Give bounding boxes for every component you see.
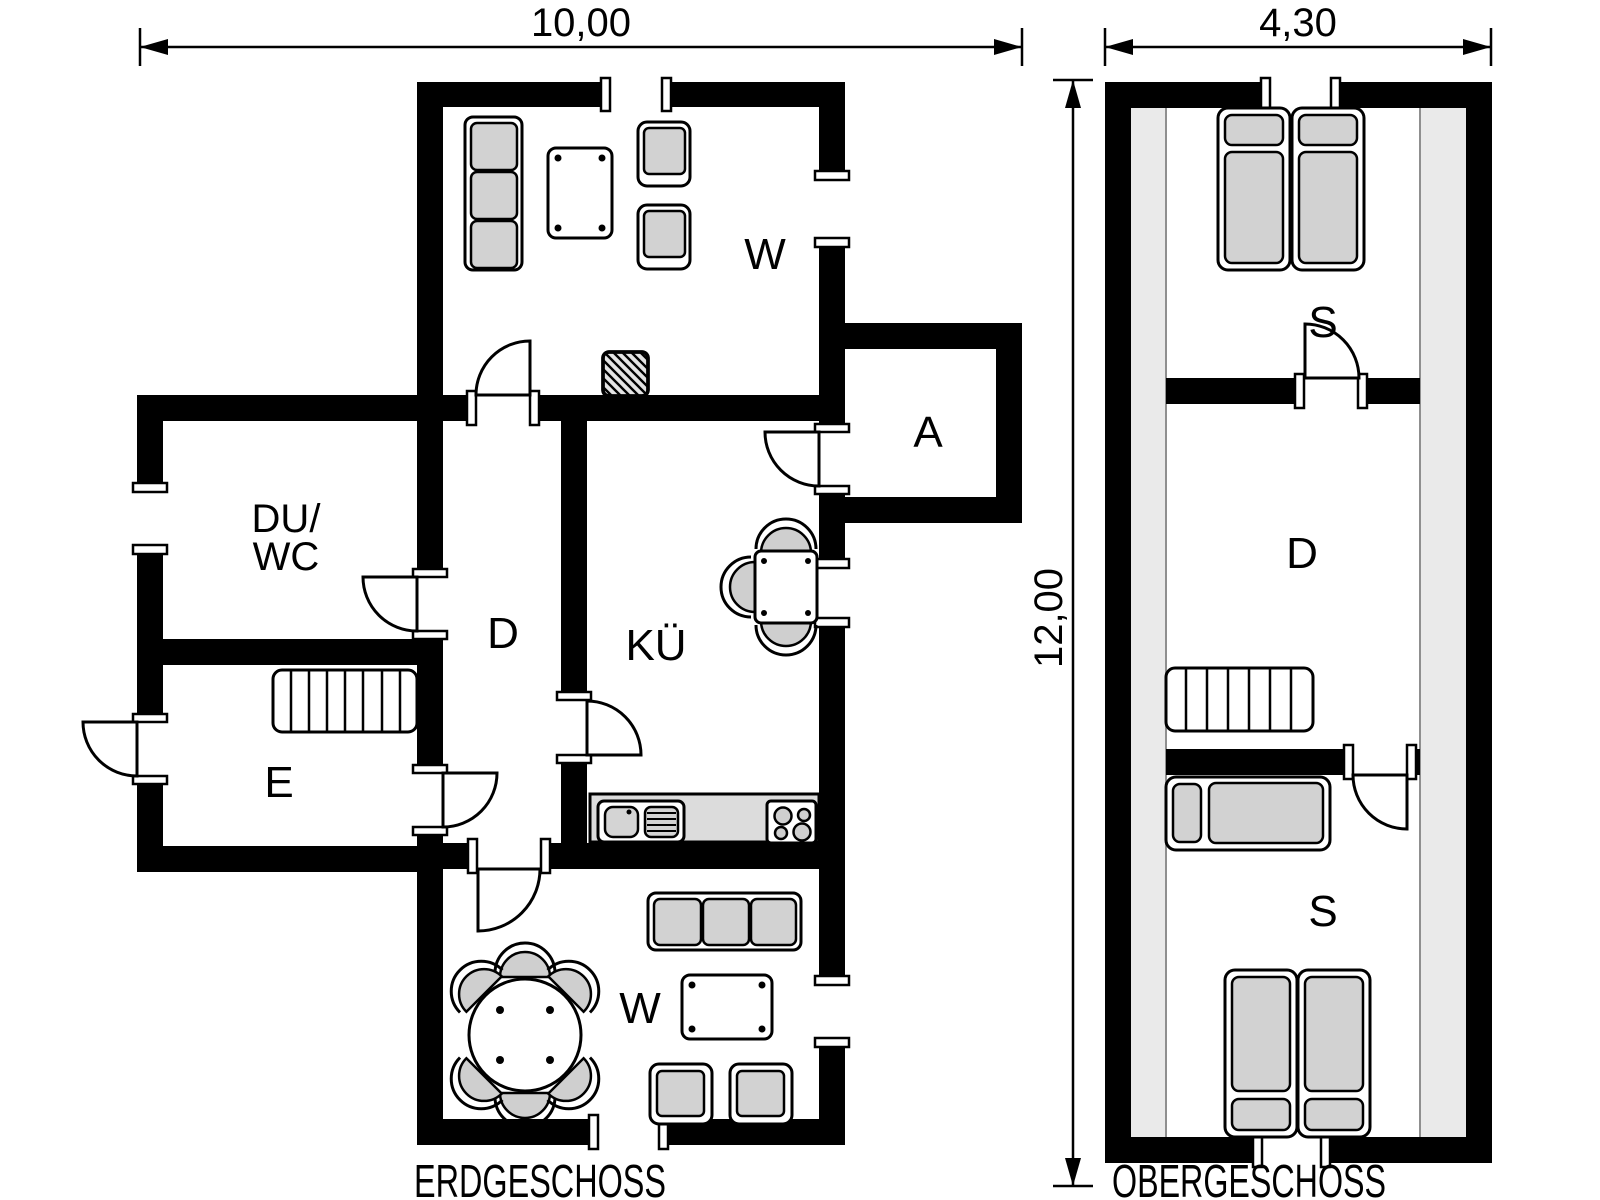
window-shower-left (133, 483, 167, 554)
dining-table-square-icon (721, 519, 817, 655)
double-bed-icon (1218, 108, 1364, 270)
attic-slope-strip-left (1131, 108, 1166, 1137)
dimension-upper-width: 4,30 (1105, 1, 1491, 66)
room-label-living-bottom: W (619, 984, 661, 1033)
window-dining-right (815, 976, 849, 1047)
upper-floor-plan: S D S OBERGESCHOSS (1105, 78, 1492, 1200)
stairs-icon (273, 670, 417, 732)
window-living-right (815, 171, 849, 247)
window-kitchen-right (815, 559, 849, 627)
dimension-label-depth: 12,00 (1027, 568, 1071, 668)
door-entrance-hall (413, 765, 497, 835)
dimension-label-ground-width: 10,00 (531, 1, 631, 45)
door-bedroom-bottom (1344, 745, 1416, 829)
dimension-ground-width: 10,00 (140, 1, 1022, 66)
room-label-entrance: E (264, 758, 293, 807)
table-icon (682, 975, 772, 1039)
room-label-storage: A (913, 408, 943, 457)
door-shower-wc (363, 569, 447, 639)
attic-slope-strip-right (1420, 108, 1466, 1137)
double-bed-icon (1225, 970, 1370, 1137)
single-bed-icon (1166, 777, 1330, 850)
armchair-icon (638, 205, 690, 269)
floor-plan-page: 10,00 4,30 12,00 (0, 0, 1600, 1200)
door-living-hall (467, 341, 539, 425)
door-entrance-exterior (83, 714, 167, 784)
fireplace-stove-icon (603, 352, 648, 396)
door-kitchen-storage (765, 424, 849, 494)
room-label-bedroom-bottom: S (1308, 887, 1337, 936)
room-label-living-top: W (744, 230, 786, 279)
room-label-bedroom-top: S (1308, 298, 1337, 347)
coffee-table-icon (548, 148, 612, 238)
floor-plan-drawing: 10,00 4,30 12,00 (0, 0, 1600, 1200)
door-hall-dining (468, 839, 550, 931)
stairs-icon (1166, 668, 1313, 731)
room-label-kitchen: KÜ (625, 621, 686, 670)
armchair-icon (638, 122, 690, 186)
door-hall-kitchen (557, 692, 641, 763)
window-top-wall (601, 78, 671, 111)
sofa-3-seat-icon (648, 893, 801, 950)
armchair-icon (730, 1064, 792, 1124)
dimension-label-upper-width: 4,30 (1259, 1, 1337, 45)
room-label-landing: D (1286, 529, 1318, 578)
sofa-3-seat-icon (465, 117, 522, 270)
caption-ground-floor: ERDGESCHOSS (414, 1155, 666, 1200)
sink-icon (598, 801, 684, 842)
stove-4-burner-icon (767, 801, 816, 843)
room-label-hallway: D (487, 609, 519, 658)
ground-floor-plan: W A DU/ WC D KÜ E W ERDGESCHOSS (83, 78, 1022, 1200)
kitchen-counter-icon (590, 794, 819, 843)
round-table-icon (439, 943, 611, 1127)
dimension-building-depth: 12,00 (1027, 80, 1093, 1186)
room-label-shower-line2: WC (253, 535, 320, 579)
armchair-icon (650, 1064, 712, 1124)
caption-upper-floor: OBERGESCHOSS (1112, 1155, 1386, 1200)
